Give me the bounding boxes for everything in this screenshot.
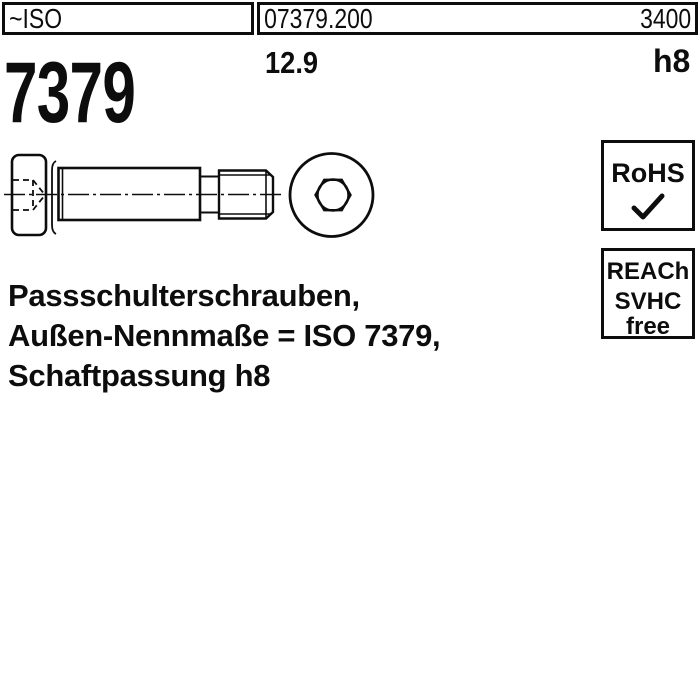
strength-class: 12.9 [265, 47, 318, 78]
reach-badge: REACh SVHC free [601, 248, 695, 339]
header-cell-iso: ~ISO [2, 2, 254, 35]
iso-label: ~ISO [5, 5, 62, 32]
reach-line-3: free [604, 315, 692, 339]
rohs-badge: RoHS [601, 140, 695, 231]
head-neck-fillet [52, 161, 56, 234]
description-line-1: Passschulterschrauben, [8, 276, 440, 316]
reach-line-2: SVHC [604, 290, 692, 314]
header-cell-article: 07379.200 3400 [257, 2, 698, 35]
screw-side-view [4, 155, 281, 235]
shaft-tolerance: h8 [653, 45, 690, 77]
screw-front-view [290, 154, 373, 237]
article-number: 07379.200 [260, 5, 373, 32]
hex-socket [316, 180, 351, 210]
check-icon [627, 193, 669, 221]
description-line-3: Schaftpassung h8 [8, 356, 440, 396]
description-line-2: Außen-Nennmaße = ISO 7379, [8, 316, 440, 356]
product-description: Passschulterschrauben, Außen-Nennmaße = … [8, 276, 440, 396]
reach-line-1: REACh [604, 260, 692, 284]
head-outline-circle [290, 154, 373, 237]
rohs-label: RoHS [604, 160, 692, 187]
technical-drawing [0, 140, 400, 270]
catalog-code: 3400 [640, 5, 695, 32]
standard-number: 7379 [4, 50, 135, 136]
product-image: ~ISO 07379.200 3400 7379 12.9 h8 [0, 0, 700, 700]
